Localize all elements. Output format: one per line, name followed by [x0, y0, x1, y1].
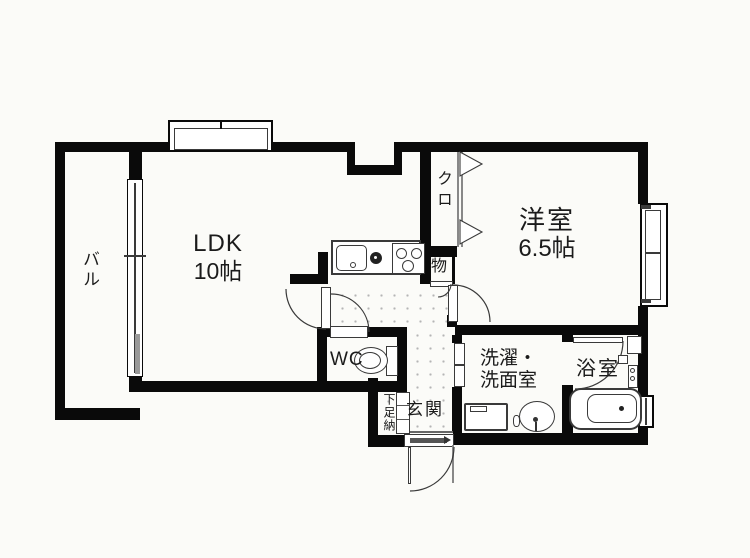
closet-door-track	[457, 152, 459, 247]
room-label-ldk-size: 10帖	[178, 259, 258, 284]
bathtub-inner	[587, 394, 637, 423]
window-bay-cap	[641, 299, 651, 303]
closet-fold-mark	[460, 220, 482, 244]
room-label-laundry-1: 洗濯・	[480, 349, 537, 370]
floor-plan: バル LDK 10帖 クロ 物 洋室 6.5帖 WC 洗濯・ 洗面室 浴室 玄関…	[0, 0, 750, 558]
door-swing-arcs	[0, 0, 750, 558]
room-label-wc: WC	[330, 350, 364, 371]
room-label-entrance: 玄関	[406, 401, 444, 419]
wall-left-outer	[55, 142, 65, 420]
door-entrance-bar	[410, 438, 447, 443]
wall-washroom-left	[452, 335, 462, 343]
door-washroom-panel	[454, 343, 465, 365]
room-label-storage: 物	[431, 258, 451, 275]
wall	[55, 142, 171, 152]
washing-machine-panel	[470, 406, 487, 412]
room-label-laundry-2: 洗面室	[480, 371, 537, 392]
wall-entrance-bottom	[368, 435, 405, 447]
window-bay-cap	[641, 205, 651, 209]
wall	[129, 152, 142, 182]
door-entrance-open-leaf	[408, 447, 411, 484]
wall-room-bottom	[455, 325, 648, 335]
wall-bottom-outer	[453, 433, 648, 445]
wall-balcony-bottom	[55, 408, 140, 420]
wall-ldk-bottom	[135, 381, 407, 392]
wall-storage-right	[452, 257, 455, 284]
room-label-bathroom: 浴室	[576, 359, 620, 381]
room-label-shoe-cabinet: 下足納	[380, 393, 395, 435]
wall	[394, 142, 648, 152]
wall-washroom-left	[452, 387, 462, 433]
door-washroom-panel	[454, 365, 465, 387]
door-wc-leaf	[330, 326, 368, 338]
wash-basin-side	[513, 415, 520, 427]
wall-bath-left	[562, 335, 573, 342]
bath-shelf	[627, 336, 642, 354]
entrance-step-line	[405, 431, 453, 433]
room-label-ldk: LDK	[178, 231, 258, 257]
room-label-closet: クロ	[431, 170, 451, 230]
hallway-floor	[332, 285, 452, 325]
kitchen-sink-drain	[350, 262, 356, 268]
wall-wc	[397, 327, 407, 392]
wall-wc	[368, 327, 398, 337]
wall-closet-bottom	[420, 246, 457, 257]
wall-right-outer	[638, 142, 648, 204]
window-balcony-tick	[124, 255, 146, 257]
wall-wc	[317, 327, 327, 391]
wall	[290, 274, 318, 284]
stove-burner	[411, 248, 422, 259]
wall-right-outer	[638, 427, 648, 445]
porch-edge-line	[452, 445, 454, 483]
wall	[318, 252, 328, 284]
door-bathroom-leaf	[573, 337, 623, 343]
window-top-tick	[220, 120, 222, 129]
basin-faucet-icon	[535, 422, 537, 431]
door-ldk-leaf	[321, 287, 331, 329]
wall	[268, 142, 355, 152]
kitchen-faucet-dot	[374, 256, 377, 259]
bathtub-drain	[619, 406, 624, 411]
room-label-balcony: バル	[74, 250, 98, 312]
room-label-western-room: 洋室	[510, 206, 584, 234]
closet-fold-mark	[460, 152, 482, 176]
window-bathroom-rail	[645, 398, 647, 425]
stove-burner	[396, 248, 407, 259]
door-western-room-leaf	[448, 285, 458, 322]
bath-faucet	[630, 368, 635, 373]
window-bay-inner	[645, 210, 661, 300]
window-top-inner	[174, 128, 268, 150]
stove-burner	[402, 260, 414, 272]
window-bay-tick	[645, 252, 661, 254]
bath-faucet	[630, 376, 635, 381]
window-balcony-sash	[135, 334, 140, 374]
room-label-western-room-size: 6.5帖	[508, 236, 586, 262]
closet-door-track	[461, 152, 463, 247]
